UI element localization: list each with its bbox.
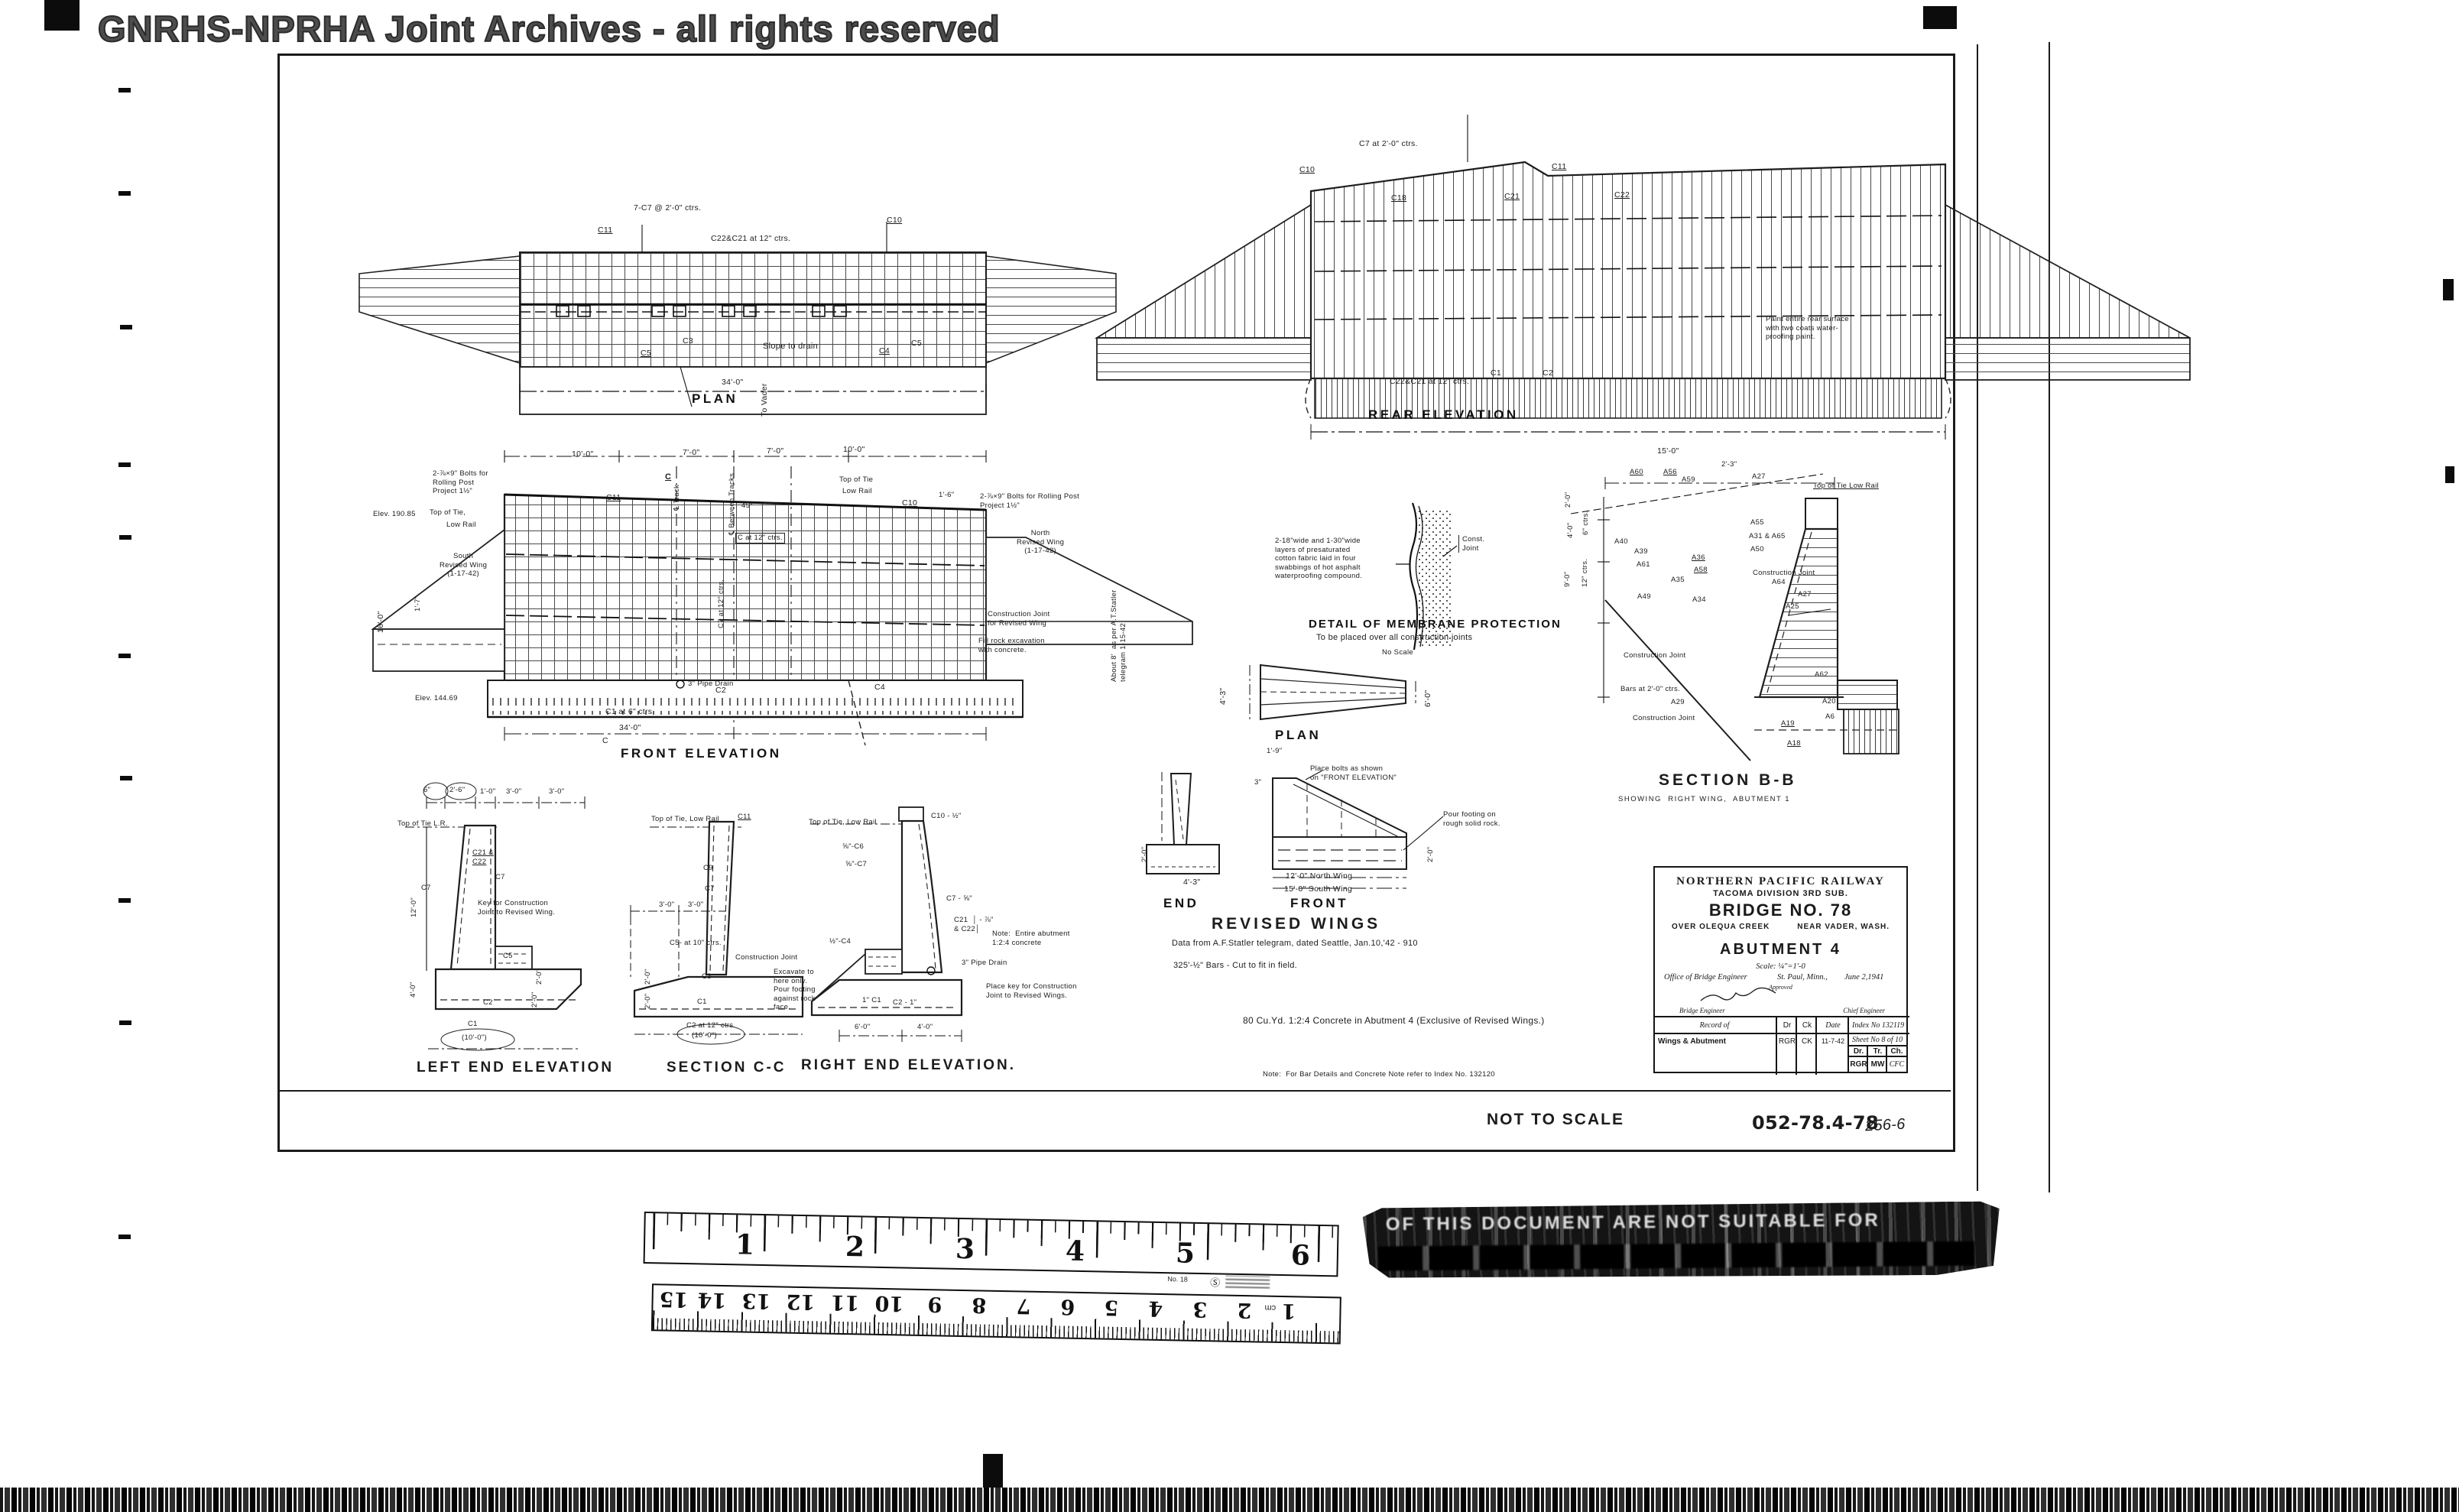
rw-plan-title: PLAN	[1275, 728, 1321, 744]
section-marker: C	[602, 736, 608, 746]
membrane-title: DETAIL OF MEMBRANE PROTECTION	[1309, 618, 1562, 631]
revision-date: 11-7-42	[1815, 1033, 1849, 1075]
callout-label: C21 & C22	[472, 848, 494, 866]
not-to-scale: NOT TO SCALE	[1487, 1110, 1624, 1130]
inch-label: 2	[845, 1231, 865, 1263]
callout-label: A59	[1682, 475, 1695, 485]
dim-label: 3'-0"	[506, 787, 521, 797]
dim-label: 34'-0"	[722, 378, 744, 388]
dim-label: 34'-0"	[619, 723, 641, 733]
inch-ruler: 1 2 3 4 5 6	[644, 1212, 1339, 1277]
callout-label: A25	[1786, 602, 1799, 612]
dim-label: 6" ctrs.	[1581, 511, 1591, 535]
inch-label: 6	[1291, 1239, 1311, 1271]
cm-ruler: 1 cm 2 3 4 5 6 7 8 9 10 11 12 13 14 15	[651, 1283, 1341, 1344]
callout-label: Pour footing on rough solid rock.	[1443, 810, 1500, 828]
dim-label: 1'-0"	[480, 787, 495, 797]
centerline-label: ℄ Between Tracks	[728, 473, 737, 535]
callout-label: C11	[606, 493, 621, 503]
concrete-note: 80 Cu.Yd. 1:2:4 Concrete in Abutment 4 (…	[1243, 1015, 1545, 1027]
cm-label: 12	[786, 1290, 815, 1314]
callout-label: Const. Joint	[1458, 535, 1484, 553]
callout-label: South Revised Wing (1-17-42)	[440, 552, 487, 579]
dim-label: 15'-0" South Wing	[1284, 884, 1352, 894]
dim-label: 4'-0"	[917, 1023, 933, 1032]
callout-label: Place key for Construction Joint to Revi…	[986, 982, 1077, 1000]
dim-label: 16'-0"	[376, 611, 386, 633]
callout-label: C7	[495, 873, 505, 882]
refer-note: Note: For Bar Details and Concrete Note …	[1263, 1070, 1495, 1079]
callout-label: 7-C7 @ 2'-0" ctrs.	[634, 203, 701, 213]
near-town: NEAR VADER, WASH.	[1797, 923, 1890, 931]
scan-edge-mark	[2443, 279, 2454, 300]
callout-label: C5- at 10" ctrs.	[670, 939, 722, 948]
callout-label: A60	[1630, 468, 1643, 477]
dim-label: 1'-6"	[939, 491, 954, 500]
callout-label: 3" Pipe Drain	[688, 680, 734, 689]
callout-label: C18	[1391, 193, 1406, 203]
callout-label: Construction Joint	[735, 953, 797, 962]
dim-label: 2'-0"	[1140, 847, 1150, 862]
ruler-maker-logo: Ⓢ	[1210, 1274, 1220, 1289]
dim-label: C22&C21 at 12" ctrs.	[1390, 377, 1469, 387]
archive-watermark: GNRHS-NPRHA Joint Archives - all rights …	[98, 8, 1001, 50]
cm-label: 9	[927, 1292, 942, 1316]
dim-label: 10'-0"	[572, 449, 594, 459]
callout-label: Bars at 2'-0" ctrs.	[1620, 685, 1680, 694]
document-number: 052-78.4-78	[1752, 1112, 1879, 1134]
dim-label: 3'-0"	[549, 787, 564, 797]
dim-label: 2'-0"	[644, 969, 653, 985]
callout-label: A50	[1750, 545, 1764, 554]
membrane-subtitle: To be placed over all construction joint…	[1316, 633, 1472, 643]
callout-label: C7	[421, 884, 431, 893]
stamp-smudge-line	[1378, 1241, 1974, 1271]
scan-corner-mark	[44, 0, 79, 31]
rw-data-note: Data from A.F.Statler telegram, dated Se…	[1172, 939, 1418, 949]
inch-label: 5	[1176, 1237, 1195, 1269]
callout-label: A19	[1781, 719, 1795, 728]
bridge-number: BRIDGE NO. 78	[1655, 900, 1906, 920]
callout-label: 3" Pipe Drain	[962, 959, 1007, 968]
callout-label: C7 at 12" ctrs.	[717, 579, 726, 628]
record-header: Record of	[1653, 1016, 1776, 1034]
callout-label: C1	[697, 998, 707, 1007]
callout-label: Construction Joint	[1753, 569, 1815, 578]
callout-label: Slope to drain	[763, 342, 818, 352]
callout-label: C7 - ⅝"	[946, 894, 972, 904]
callout-label: C5	[641, 349, 651, 359]
dim-label: 2'-0"	[530, 992, 540, 1007]
dim-label: (10'-0")	[692, 1031, 717, 1040]
dim-label: 6'-0"	[1423, 690, 1433, 707]
cm-unit-label: cm	[1264, 1303, 1276, 1312]
callout-label: Excavate to here only. Pour footing agai…	[774, 968, 816, 1012]
callout-label: C10	[887, 216, 902, 226]
callout-label: A27	[1752, 472, 1766, 482]
dim-label: 3'-0" 3'-0"	[659, 900, 703, 910]
dim-label: 1'-7"	[414, 596, 423, 612]
callout-label: Construction Joint	[1624, 651, 1685, 660]
callout-label: C3	[702, 972, 712, 982]
callout-label: Construction Joint for Revised Wing	[988, 610, 1049, 628]
callout-label: C7	[705, 884, 715, 894]
office-line: Office of Bridge Engineer	[1664, 973, 1747, 982]
rear-elevation-title: REAR ELEVATION	[1368, 407, 1519, 423]
page-edge-line	[1977, 44, 1978, 1191]
col-date: Date	[1815, 1016, 1849, 1034]
callout-label: C21	[1504, 192, 1520, 202]
callout-label: C2	[1543, 368, 1553, 378]
bridge-engineer-label: Bridge Engineer	[1679, 1007, 1725, 1014]
dr-value: RGR	[1847, 1056, 1868, 1072]
scan-corner-mark	[1923, 6, 1957, 29]
callout-label: North Revised Wing (1-17-42)	[1017, 529, 1064, 556]
scan-noise-band	[0, 1488, 2459, 1512]
scan-blot	[983, 1454, 1003, 1491]
dim-label: 2'-6"	[449, 786, 465, 795]
callout-label: C5	[503, 952, 513, 961]
callout-label: C11	[598, 226, 612, 235]
callout-label: C5	[911, 339, 922, 349]
cm-label: 7	[1016, 1293, 1030, 1317]
dim-label: 2'-0"	[1564, 492, 1573, 508]
callout-label: Top of Tie	[839, 475, 873, 485]
callout-label: C11	[1552, 162, 1566, 172]
section-marker: C	[665, 472, 671, 482]
revised-wings-title: REVISED WINGS	[1212, 914, 1380, 934]
cm-label: 3	[1192, 1297, 1207, 1321]
revision-dr: RGR	[1776, 1033, 1797, 1075]
dim-label: 1'-9"	[1267, 747, 1282, 756]
callout-label: Top of Tie, Low Rail	[651, 815, 719, 824]
callout-label: A6	[1825, 712, 1835, 722]
revision-ck: CK	[1796, 1033, 1817, 1075]
tr-value: MW	[1867, 1056, 1887, 1072]
callout-label: C2	[483, 998, 493, 1007]
callout-label: C22	[1614, 190, 1630, 200]
cm-label: 14	[697, 1287, 726, 1312]
centerline-label: ℄ Track	[673, 485, 682, 511]
over-creek: OVER OLEQUA CREEK	[1672, 923, 1770, 931]
stamp-text: OF THIS DOCUMENT ARE NOT SUITABLE FOR	[1386, 1210, 1880, 1236]
dim-label: 2'-0"	[1426, 847, 1435, 862]
callout-label: C4	[879, 346, 890, 356]
callout-label: A27	[1798, 590, 1812, 599]
callout-label: A31 & A65	[1749, 532, 1786, 541]
callout-label: ⅝"-C7	[845, 860, 867, 869]
section-bb-title: SECTION B-B	[1659, 771, 1797, 790]
left-end-title: LEFT END ELEVATION	[417, 1059, 614, 1076]
callout-label: Top of Tie, Low Rail	[809, 818, 877, 827]
city-line: St. Paul, Minn.,	[1777, 973, 1828, 982]
callout-label: C1	[1491, 368, 1501, 378]
callout-label: A39	[1634, 547, 1648, 556]
dim-label: 7'-0"	[683, 448, 699, 458]
document-number-handwritten: 256-6	[1864, 1115, 1906, 1136]
dim-label: 7'-0"	[767, 446, 783, 456]
ruler-maker-smudge	[1225, 1276, 1270, 1289]
dim-label: 12'-0"	[410, 897, 419, 917]
callout-label: A56	[1663, 468, 1677, 477]
callout-label: Low Rail	[842, 487, 872, 496]
dim-label: C1 at 6" ctrs.	[605, 707, 655, 717]
abutment-title: ABUTMENT 4	[1655, 941, 1906, 959]
dim-label: 10'-0"	[843, 445, 865, 455]
reproduction-stamp: OF THIS DOCUMENT ARE NOT SUITABLE FOR	[1363, 1201, 2000, 1280]
callout-label: C at 12" ctrs.	[735, 533, 785, 543]
callout-label: ⅝"-C6	[842, 842, 864, 852]
callout-label: C10 - ½"	[931, 812, 962, 821]
dim-label: 9'-0"	[1563, 572, 1572, 587]
cm-label: 5	[1104, 1296, 1118, 1319]
callout-label: A64	[1772, 578, 1786, 587]
page-edge-line	[2049, 42, 2050, 1192]
callout-label: C7 at 2'-0" ctrs.	[1359, 139, 1418, 149]
callout-label: A49	[1637, 592, 1651, 602]
inch-label: 1	[735, 1228, 755, 1261]
callout-label: Low Rail	[446, 521, 476, 530]
callout-label: A55	[1750, 518, 1764, 527]
chief-engineer-label: Chief Engineer	[1843, 1007, 1885, 1014]
plan-title: PLAN	[692, 391, 738, 407]
railway-name: NORTHERN PACIFIC RAILWAY	[1655, 875, 1906, 888]
title-block: NORTHERN PACIFIC RAILWAY TACOMA DIVISION…	[1653, 866, 1908, 1073]
callout-label: A36	[1692, 553, 1705, 563]
dim-label: 6"	[423, 786, 430, 795]
callout-label: C2 - 1"	[893, 998, 916, 1007]
ch-value: CFC	[1886, 1056, 1906, 1072]
ruler-model: No. 18	[1167, 1275, 1188, 1283]
dim-label: 2'-3"	[1721, 460, 1737, 469]
rw-end-title: END	[1163, 896, 1199, 912]
inch-label: 4	[1066, 1235, 1085, 1267]
cm-label: 8	[972, 1293, 986, 1316]
callout-label: A34	[1692, 595, 1706, 605]
dim-label: 4'-3"	[1218, 688, 1228, 705]
elevation-label: Elev. 190.85	[373, 510, 416, 519]
callout-label: A29	[1671, 698, 1685, 707]
callout-label: Key for Construction Joint to Revised Wi…	[478, 899, 555, 917]
cm-label: 4	[1148, 1296, 1163, 1320]
callout-label: 1" C1	[862, 996, 881, 1005]
dim-label: 4'-3"	[1183, 878, 1200, 887]
callout-label: 2-⅞×9" Bolts for Rolling Post Project 1½…	[433, 469, 488, 496]
cm-label: 2	[1237, 1298, 1251, 1322]
cm-label: 11	[830, 1290, 859, 1315]
dim-label: 2'-0"	[535, 969, 544, 985]
callout-label: ½"-C4	[829, 937, 851, 946]
scan-edge-mark	[2445, 466, 2454, 483]
callout-label: Top of Tie Low Rail	[1813, 482, 1879, 491]
section-cc-title: SECTION C-C	[667, 1059, 787, 1076]
paint-note: Paint entire rear surface with two coats…	[1766, 315, 1849, 342]
dim-label: 3"	[1254, 778, 1261, 787]
dim-label: 4'-0"	[409, 982, 418, 998]
to-vader-label: To Vader	[760, 383, 770, 417]
callout-label: Top of Tie,	[430, 508, 466, 518]
dim-label: 2'-0"	[644, 994, 653, 1009]
abutment-note: Note: Entire abutment 1:2:4 concrete	[992, 930, 1070, 947]
callout-label: A20	[1822, 697, 1836, 706]
division: TACOMA DIVISION 3RD SUB.	[1655, 889, 1906, 898]
callout-label: Construction Joint	[1633, 714, 1695, 723]
callout-label: Top of Tie L.R.	[397, 819, 448, 829]
membrane-note: 2-18"wide and 1-30"wide layers of presat…	[1275, 537, 1362, 581]
inch-label: 3	[955, 1233, 975, 1265]
dim-label: (10'-0")	[462, 1033, 487, 1043]
callout-label: Fill rock excavation with concrete.	[978, 637, 1045, 654]
callout-label: C11	[738, 813, 751, 822]
callout-label: A58	[1694, 566, 1708, 575]
cm-label: 6	[1060, 1294, 1075, 1318]
sheet-band-divider	[277, 1090, 1951, 1092]
scanned-drawing-page: GNRHS-NPRHA Joint Archives - all rights …	[0, 0, 2459, 1512]
dim-label: C2 at 12" ctrs.	[686, 1021, 735, 1030]
cm-label: 13	[741, 1288, 770, 1312]
cm-label: 10	[874, 1291, 903, 1316]
callout-label: C1	[468, 1020, 478, 1029]
callout-label: C10	[902, 498, 917, 508]
dim-label: 4'-0"	[1566, 523, 1575, 538]
dim-label: 6'-0"	[855, 1023, 870, 1032]
callout-label: Place bolts as shown on "FRONT ELEVATION…	[1310, 764, 1397, 782]
cm-label: 15	[659, 1286, 688, 1311]
elevation-label: Elev. 144.69	[415, 694, 458, 703]
callout-label: About 8' as per A.T.Statler telegram 1-1…	[1110, 589, 1127, 682]
right-end-title: RIGHT END ELEVATION.	[801, 1056, 1016, 1074]
callout-label: C4	[874, 683, 885, 693]
callout-label: C2	[715, 686, 726, 696]
callout-label: C9	[703, 864, 713, 873]
callout-label: C3	[683, 336, 693, 346]
scale-note: Scale: ¼"=1'-0	[1655, 962, 1906, 971]
callout-label: A61	[1637, 560, 1650, 569]
cm-label: 1	[1281, 1299, 1296, 1322]
rw-bars-note: 325'-½" Bars - Cut to fit in field.	[1173, 961, 1297, 971]
front-elevation-title: FRONT ELEVATION	[621, 746, 782, 762]
scale-ruler: 1 2 3 4 5 6 No. 18 Ⓢ 1 cm 2 3 4 5 6 7 8 …	[642, 1205, 1344, 1351]
callout-label: A35	[1671, 576, 1685, 585]
index-number: Index No 132119	[1847, 1016, 1909, 1034]
callout-label: A18	[1787, 739, 1801, 748]
callout-label: C10	[1299, 165, 1315, 175]
dim-label: 45°	[741, 501, 753, 511]
callout-label: C21 │ - ⅞" & C22│	[954, 916, 994, 933]
signature-scribble	[1697, 988, 1789, 1005]
section-bb-subtitle: SHOWING RIGHT WING, ABUTMENT 1	[1618, 795, 1790, 804]
rear-elevation-drawing	[1085, 115, 1896, 443]
callout-label: A62	[1815, 670, 1828, 680]
col-ck: Ck	[1796, 1016, 1817, 1034]
scan-edge-marks	[118, 88, 131, 92]
callout-label: 2-⅞×9" Bolts for Rolling Post Project 1½…	[980, 492, 1079, 510]
dim-label: C22&C21 at 12" ctrs.	[711, 234, 790, 244]
dim-label: 15'-0"	[1657, 446, 1679, 456]
col-dr: Dr	[1776, 1016, 1797, 1034]
rw-front-title: FRONT	[1290, 896, 1348, 912]
date-line: June 2,1941	[1844, 973, 1883, 982]
dim-label: 12" ctrs.	[1581, 559, 1590, 587]
dim-label: 12'-0" North Wing	[1286, 871, 1352, 881]
callout-label: A40	[1614, 537, 1628, 547]
revision-entry: Wings & Abutment	[1653, 1033, 1780, 1075]
